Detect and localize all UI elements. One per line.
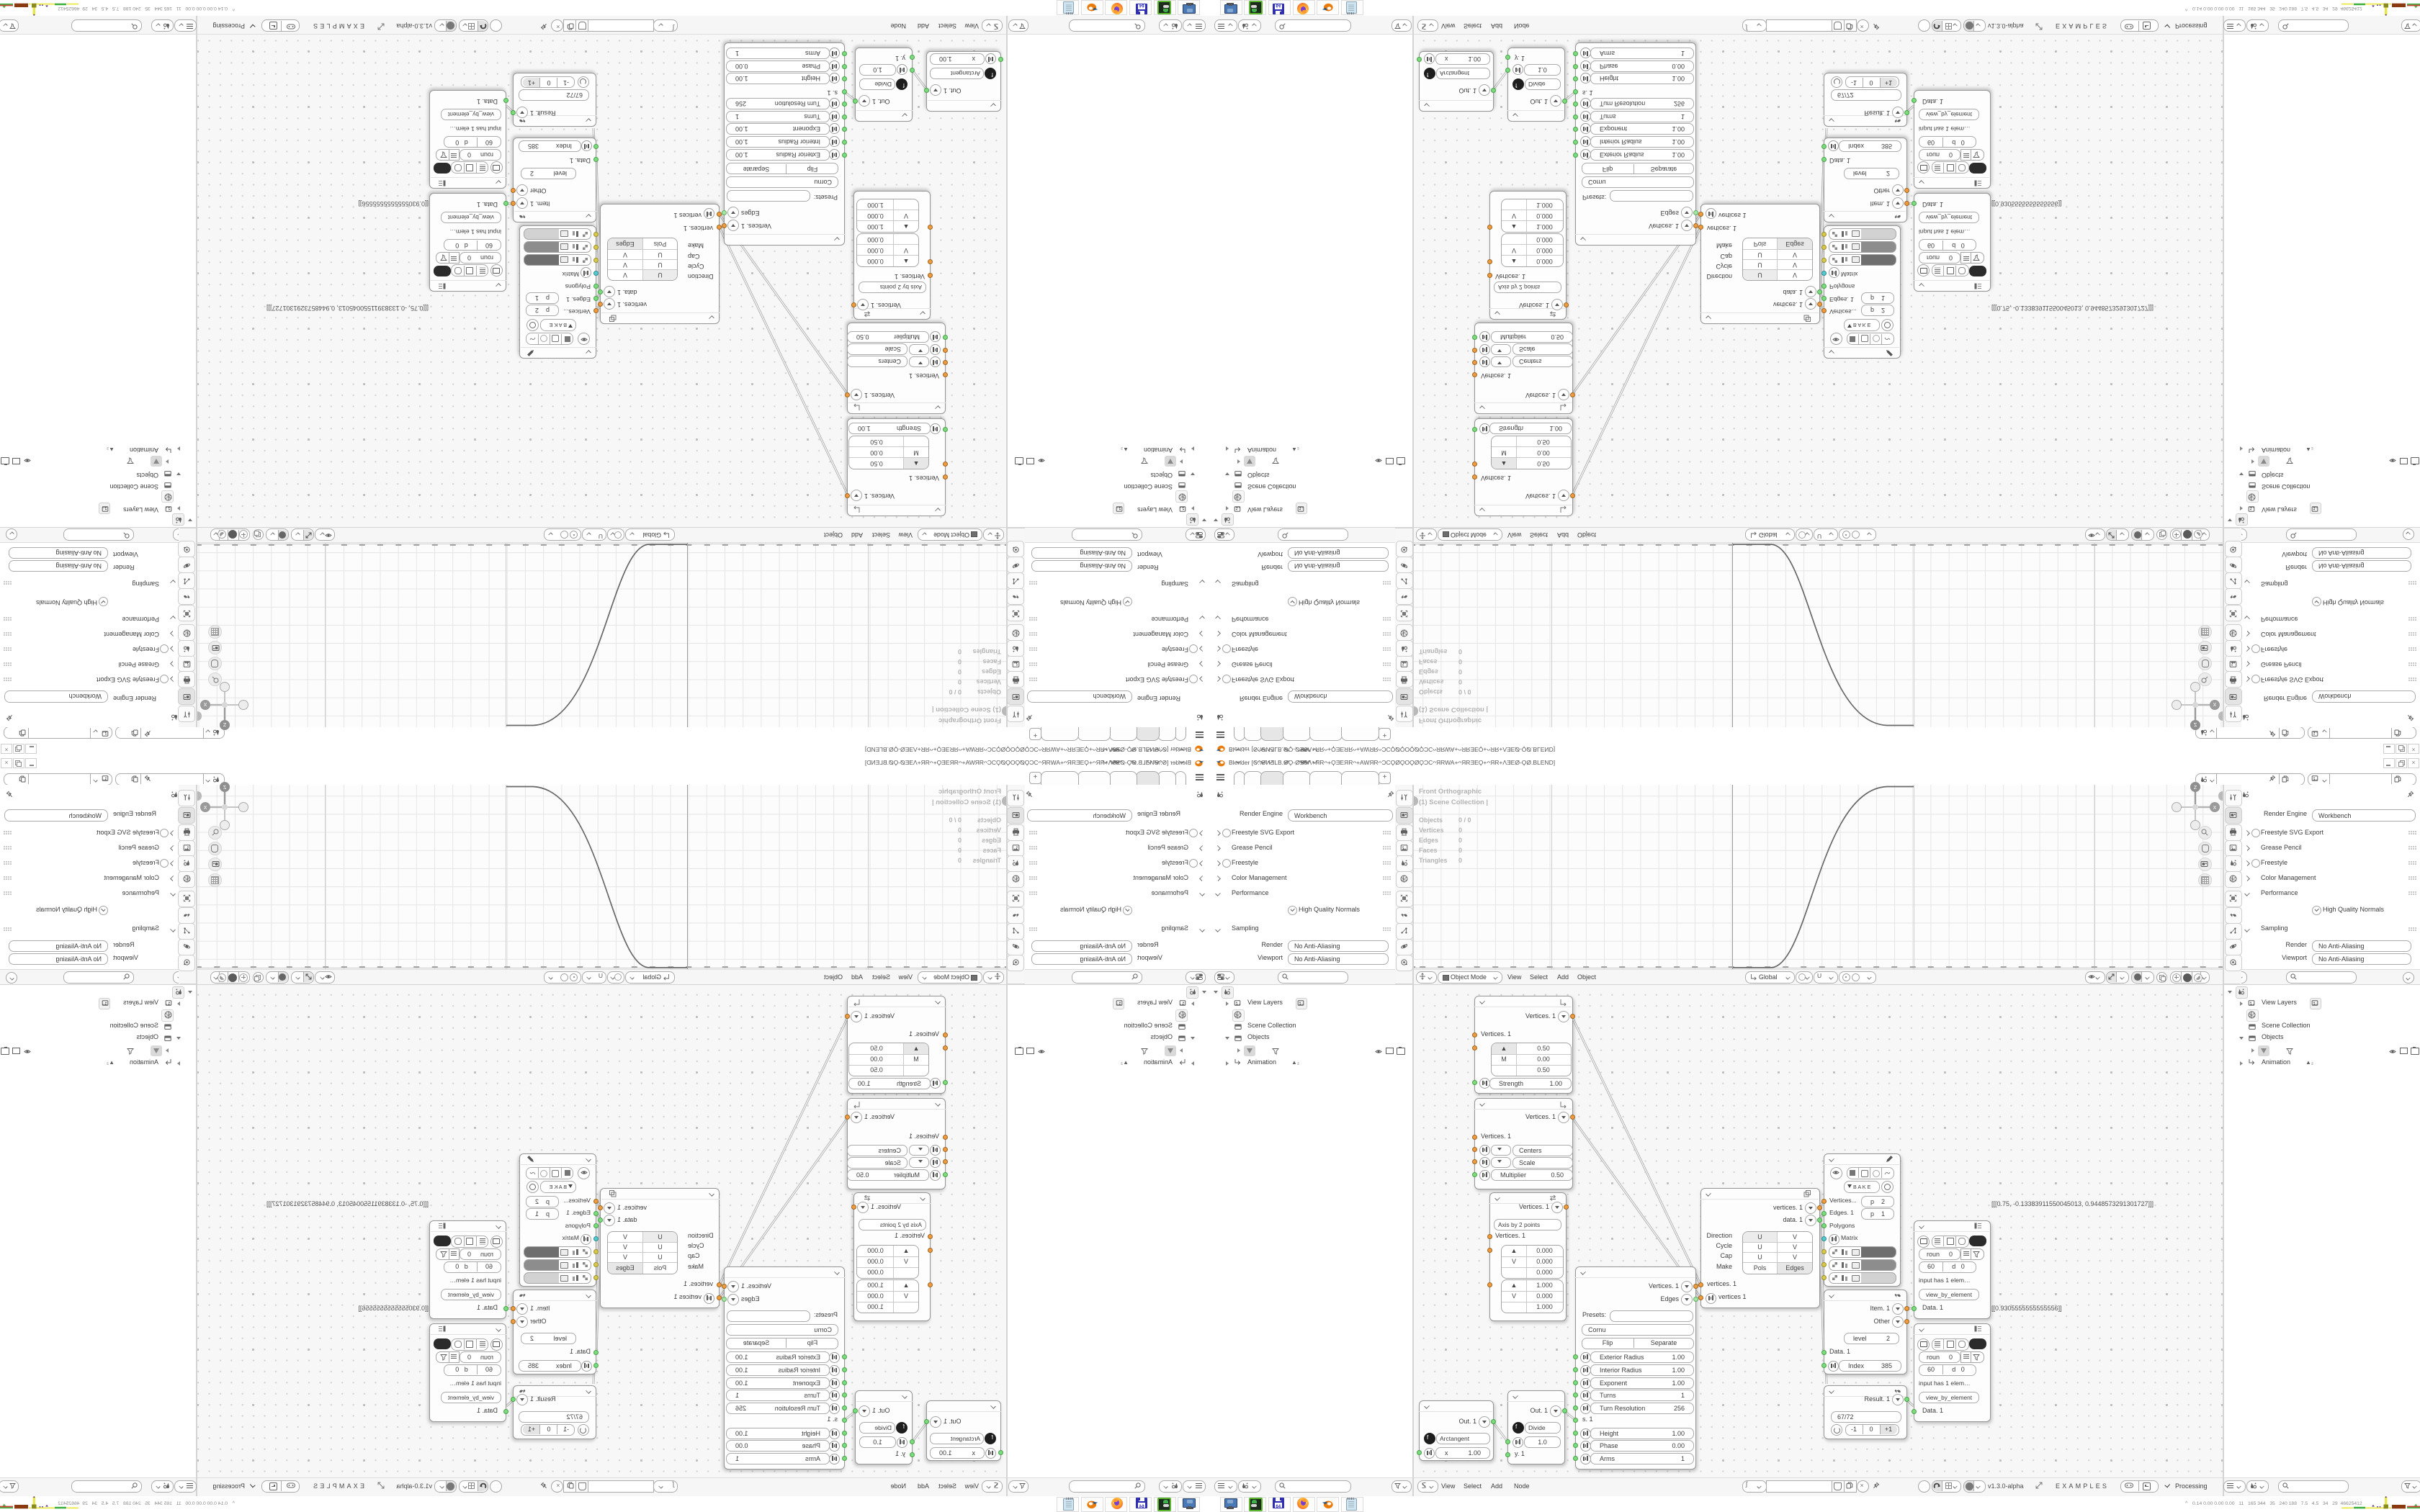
- svg-text:X: X: [203, 806, 207, 811]
- svg-text:Z: Z: [2194, 786, 2197, 791]
- svg-text:Z: Z: [223, 721, 226, 726]
- svg-text:X: X: [203, 701, 207, 706]
- svg-text:Z: Z: [2194, 721, 2197, 726]
- svg-text:Z: Z: [223, 786, 226, 791]
- svg-text:X: X: [2213, 806, 2217, 811]
- svg-text:X: X: [2213, 701, 2217, 706]
